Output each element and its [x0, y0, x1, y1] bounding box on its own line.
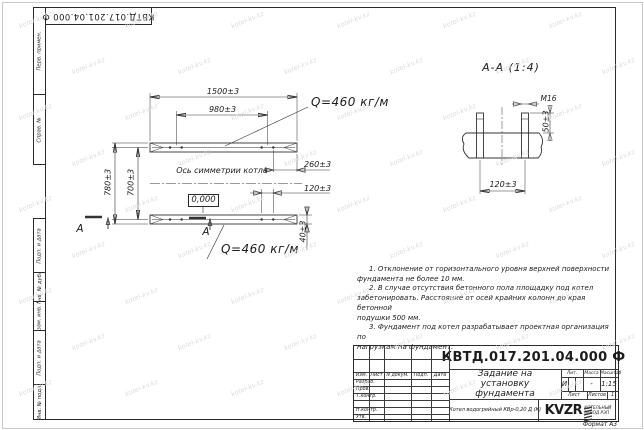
grid-line	[561, 391, 618, 392]
kvzr-spring-icon	[583, 406, 593, 422]
note-line: 1. Отклонение от горизонтального уровня …	[357, 265, 619, 275]
row-prov: Пров.	[356, 387, 370, 392]
grid-line	[354, 359, 449, 360]
dim-label-120-plan: 120±3	[304, 184, 331, 193]
dim-label-1500: 1500±3	[198, 87, 248, 96]
format-label: Формат А3	[555, 421, 644, 428]
lit-label: Лит.	[561, 371, 583, 376]
section-cut-marks	[85, 217, 212, 230]
grid-line	[354, 393, 449, 394]
row-utv: Утв.	[356, 415, 366, 420]
grid-line	[449, 346, 450, 421]
dim-label-120-section: 120±3	[489, 180, 517, 189]
scale-value: 1:15	[600, 380, 618, 388]
grid-line	[449, 399, 618, 400]
sheets-label: Листов	[587, 393, 607, 398]
note-line: подушки 500 мм.	[357, 314, 619, 324]
col-izm: Изм.	[355, 373, 368, 378]
foundation-rail-top	[150, 143, 297, 152]
notes-block: 1. Отклонение от горизонтального уровня …	[357, 265, 619, 352]
col-list: Лист	[369, 373, 384, 378]
section-title: А-А (1:4)	[478, 61, 544, 74]
col-data: Дата	[431, 373, 449, 378]
title-block-doc-number: КВТД.017.201.04.000 Ф	[449, 346, 618, 369]
grid-line	[449, 369, 618, 370]
anchor-bolt-left	[477, 113, 484, 158]
symmetry-axis-label: Ось симметрии котла	[176, 166, 268, 175]
note-line: 2. В случае отсутствия бетонного пола пл…	[357, 284, 619, 294]
grid-line	[575, 377, 576, 391]
sheet-label: Лист	[561, 393, 587, 398]
note-line: фундамента не более 10 мм.	[357, 275, 619, 285]
anchor-bolt-right	[522, 113, 529, 158]
section-letter-right: А	[200, 226, 212, 238]
load-label-bottom: Q=460 кг/м	[221, 242, 299, 256]
grid-line	[369, 346, 370, 421]
dim-label-700: 700±3	[126, 168, 137, 198]
dim-label-980: 980±3	[200, 105, 245, 114]
col-doc: N докум.	[384, 373, 411, 378]
dim-label-260: 260±3	[304, 160, 331, 169]
row-nkontr: Н.контр.	[356, 408, 377, 413]
title-block: Изм. Лист N докум. Подп. Дата Разраб. Пр…	[353, 345, 619, 422]
grid-line	[354, 407, 449, 408]
grid-line	[354, 414, 449, 415]
mass-label: Масса	[583, 371, 600, 376]
col-podp: Подп.	[411, 373, 431, 378]
grid-line	[354, 379, 449, 380]
drawing-title: Задание на установку фундамента	[449, 369, 561, 399]
note-line: забетонировать. Расстояние от осей крайн…	[357, 294, 619, 313]
mass-value: -	[583, 380, 600, 388]
note-line: 3. Фундамент под котел разрабатывает про…	[357, 323, 619, 342]
grid-line	[561, 369, 562, 399]
grid-line	[384, 346, 385, 421]
grid-line	[607, 391, 608, 399]
row-razrab: Разраб.	[356, 380, 375, 385]
product-name: Котел водогрейный КВр-0,20 Д (К)	[449, 407, 538, 413]
grid-line	[561, 377, 618, 378]
level-mark: 0,000	[188, 194, 219, 207]
row-tkontr: Т.контр.	[356, 394, 377, 399]
dim-label-780: 780±3	[103, 168, 114, 198]
margin-cell-inv-podl: Инв. № подл.	[33, 384, 46, 420]
grid-line	[583, 369, 584, 391]
section-letter-left: А	[74, 223, 86, 235]
thread-label-m16: М16	[541, 94, 557, 103]
grid-line	[354, 372, 449, 373]
sheets-value: 1	[607, 393, 618, 398]
load-label-top: Q=460 кг/м	[311, 95, 389, 109]
grid-line	[538, 399, 539, 421]
thread-dim	[512, 102, 539, 106]
lit-value: И	[561, 380, 568, 388]
dim-label-40: 40±3	[298, 217, 309, 247]
foundation-rail-bottom	[150, 215, 297, 224]
drawing-sheet: Перв. примен. Справ. № Подп. и дата Инв.…	[0, 0, 644, 430]
company-logo: KVZR КОТЕЛЬНЫЙ ЗАВОД РЭП	[538, 399, 618, 421]
company-brand: KVZR	[545, 403, 583, 418]
scale-label: Масштаб	[600, 371, 618, 376]
concrete-block	[462, 133, 542, 158]
grid-line	[411, 346, 412, 421]
grid-line	[354, 400, 449, 401]
grid-line	[568, 377, 569, 391]
grid-line	[354, 386, 449, 387]
grid-line	[587, 391, 588, 399]
dim-label-50: 50±3	[541, 106, 552, 138]
grid-line	[431, 346, 432, 421]
grid-line	[600, 369, 601, 391]
